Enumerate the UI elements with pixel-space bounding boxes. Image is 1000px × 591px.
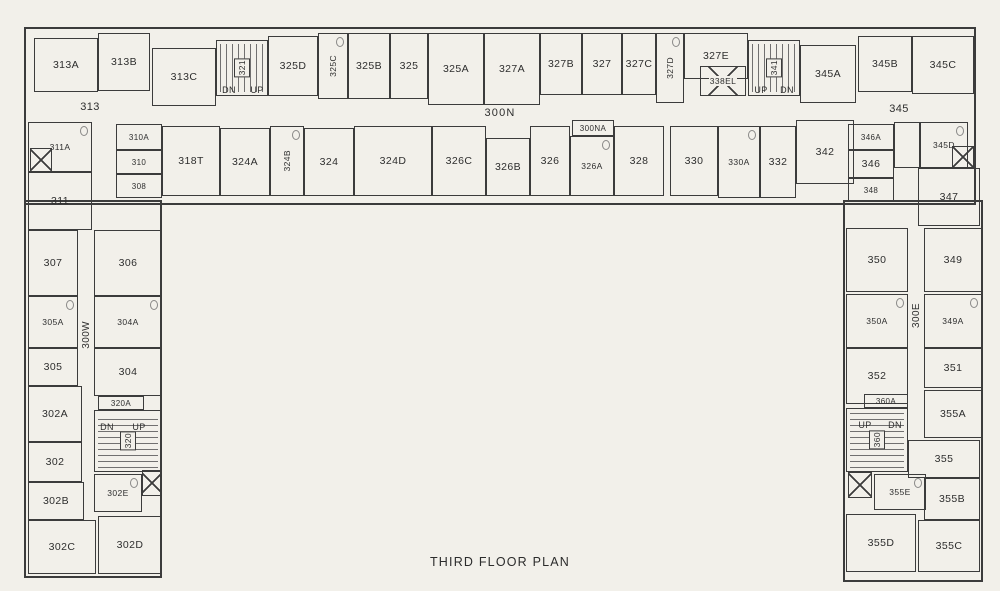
room-345: 345 [844,92,954,126]
room-label: 324A [232,156,258,168]
room-302B: 302B [28,482,84,520]
direction-label-DN: DN [886,419,904,430]
elevator-box [142,470,162,496]
room-label: 324D [380,155,407,167]
room-label: 360A [876,397,896,406]
room-label: 324 [320,156,339,168]
direction-label-UP: UP [130,421,148,432]
room-label: 351 [944,362,963,374]
room-label: 355A [940,408,966,420]
elevator-338EL: 338EL [700,66,746,96]
room-box [894,122,920,168]
bathroom-label: 302E [107,488,128,498]
room-327A: 327A [484,33,540,105]
bathroom-324B: 324B [270,126,304,196]
room-label: 327E [703,50,729,62]
room-327: 327 [582,33,622,95]
direction-label-label: UP [858,420,871,430]
elevator-box [30,148,52,172]
room-label: 355B [939,493,965,505]
elevator-box [952,146,974,168]
stair-label: 321 [234,58,250,77]
room-351: 351 [924,348,982,388]
room-label: 313B [111,56,137,68]
bathroom-349A: 349A [924,294,982,348]
room-label: 352 [868,370,887,382]
room-342: 342 [796,120,854,184]
bathroom-355E: 355E [874,474,926,510]
corridor-label: 300N [484,107,515,119]
bathroom-label: 324B [282,150,292,171]
room-label: 349 [944,254,963,266]
room-label: 345A [815,68,841,80]
bathroom-304A: 304A [94,296,162,348]
room-355B: 355B [924,478,980,520]
direction-label-DN: DN [220,84,238,95]
stair-label: 341 [766,58,782,77]
room-347: 347 [918,168,980,226]
room-313B: 313B [98,33,150,91]
elevator-label: 338EL [709,76,738,86]
room-label: 313C [171,71,198,83]
room-327B: 327B [540,33,582,95]
room-label: 345C [930,59,957,71]
bathroom-label: 304A [117,317,138,327]
room-306: 306 [94,230,162,296]
bathroom-label: 311A [50,142,71,152]
room-345B: 345B [858,36,912,92]
room-326B: 326B [486,138,530,196]
room-349: 349 [924,228,982,292]
room-label: 310A [129,133,149,142]
bathroom-325C: 325C [318,33,348,99]
corridor-300W: 300W [78,300,94,370]
room-355: 355 [908,440,980,478]
room-label: 304 [119,366,138,378]
floor-plan-page: 313A313B313C321DNUP325D325C325B325325A32… [0,0,1000,591]
room-label: 325B [356,60,382,72]
direction-label-UP: UP [752,84,770,95]
room-label: 345 [889,103,909,115]
room-302A: 302A [28,386,82,442]
room-313C: 313C [152,48,216,106]
room-label: 327C [626,58,653,70]
bathroom-330A: 330A [718,126,760,198]
room-313A: 313A [34,38,98,92]
room-label: 308 [132,182,147,191]
direction-label-label: UP [132,422,145,432]
room-311: 311 [28,172,92,230]
room-label: 327B [548,58,574,70]
direction-label-UP: UP [856,419,874,430]
room-label: 318T [178,155,204,167]
room-label: 325A [443,63,469,75]
direction-label-DN: DN [778,84,796,95]
room-label: 342 [816,146,835,158]
room-label: 302C [49,541,76,553]
elevator-box [848,472,872,498]
room-label: 328 [630,155,649,167]
room-320A: 320A [98,396,144,410]
room-label: 320A [111,399,131,408]
direction-label-UP: UP [248,84,266,95]
bathroom-label: 330A [728,157,749,167]
room-325B: 325B [348,33,390,99]
room-348: 348 [848,178,894,202]
room-327C: 327C [622,33,656,95]
room-label: 350 [868,254,887,266]
bathroom-label: 350A [866,316,887,326]
room-300NA: 300NA [572,120,614,136]
room-label: 302A [42,408,68,420]
direction-label-label: DN [780,85,794,95]
room-label: 355C [936,540,963,552]
bathroom-label: 326A [581,161,602,171]
stair-label: 320 [120,431,136,450]
bathroom-305A: 305A [28,296,78,348]
room-label: 332 [769,156,788,168]
stair-label: 360 [869,430,885,449]
room-325D: 325D [268,36,318,96]
bathroom-326A: 326A [570,136,614,196]
room-label: 325 [400,60,419,72]
room-label: 347 [940,191,959,203]
room-318T: 318T [162,126,220,196]
room-label: 306 [119,257,138,269]
room-label: 300NA [580,124,606,133]
corridor-label: 300W [81,321,92,349]
room-330: 330 [670,126,718,196]
direction-label-label: DN [222,85,236,95]
direction-label-DN: DN [98,421,116,432]
room-label: 346A [861,133,881,142]
room-332: 332 [760,126,796,198]
room-346: 346 [848,150,894,178]
direction-label-label: UP [250,85,263,95]
room-310A: 310A [116,124,162,150]
room-310: 310 [116,150,162,174]
room-355A: 355A [924,390,982,438]
room-304: 304 [94,348,162,396]
room-label: 326 [541,155,560,167]
room-label: 346 [862,158,881,170]
room-360A: 360A [864,394,908,408]
room-label: 302B [43,495,69,507]
room-325A: 325A [428,33,484,105]
room-label: 325D [280,60,307,72]
direction-label-label: DN [100,422,114,432]
room-324A: 324A [220,128,270,196]
room-345C: 345C [912,36,974,94]
room-label: 330 [685,155,704,167]
room-label: 311 [51,195,69,207]
room-label: 302 [46,456,65,468]
room-307: 307 [28,230,78,296]
room-308: 308 [116,174,162,198]
stair-320: 320 [94,410,162,472]
bathroom-label: 325C [328,55,338,77]
room-326: 326 [530,126,570,196]
room-label: 355D [868,537,895,549]
room-350: 350 [846,228,908,292]
room-302: 302 [28,442,82,482]
direction-label-label: DN [888,420,902,430]
corridor-300N: 300N [300,100,700,126]
room-label: 307 [44,257,63,269]
room-label: 345B [872,58,898,70]
bathroom-label: 355E [889,487,910,497]
corridor-label: 300E [911,303,922,328]
room-label: 326B [495,161,521,173]
room-305: 305 [28,348,78,386]
room-label: 313A [53,59,79,71]
room-346A: 346A [848,124,894,150]
room-label: 355 [935,453,954,465]
room-328: 328 [614,126,664,196]
room-label: 326C [446,155,473,167]
bathroom-label: 327D [665,57,675,79]
room-325: 325 [390,33,428,99]
room-label: 327 [593,58,612,70]
bathroom-350A: 350A [846,294,908,348]
room-313: 313 [30,90,150,124]
direction-label-label: UP [754,85,767,95]
room-label: 305 [44,361,63,373]
bathroom-label: 305A [42,317,63,327]
room-label: 310 [132,158,147,167]
room-label: 348 [864,186,879,195]
corridor-300E: 300E [908,280,924,350]
stair-360: 360 [846,408,908,472]
room-label: 327A [499,63,525,75]
room-label: 302D [117,539,144,551]
room-326C: 326C [432,126,486,196]
room-324: 324 [304,128,354,196]
room-label: 313 [80,101,100,113]
plan-title: THIRD FLOOR PLAN [0,555,1000,569]
bathroom-327D: 327D [656,33,684,103]
room-324D: 324D [354,126,432,196]
bathroom-302E: 302E [94,474,142,512]
bathroom-label: 349A [942,316,963,326]
